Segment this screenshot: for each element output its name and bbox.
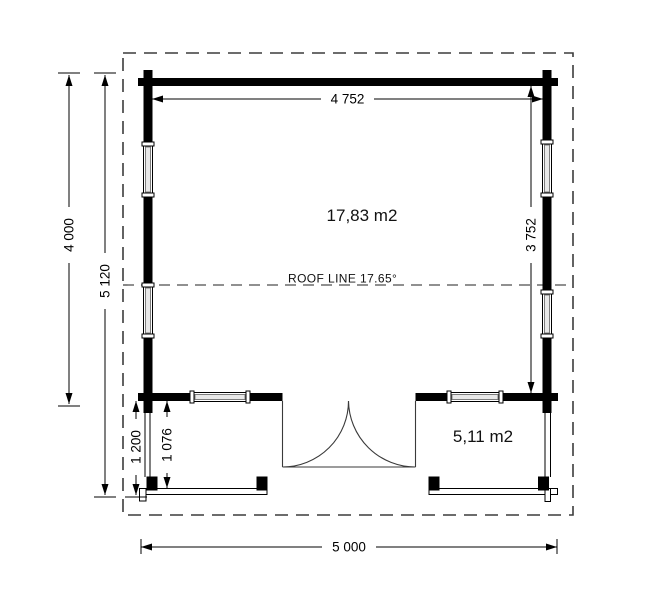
- dim-porch-depth-label: 1 200: [129, 430, 144, 464]
- wall-segment-right-2: [543, 197, 552, 290]
- porch-post: [147, 477, 158, 491]
- walls: [138, 70, 558, 413]
- arrowhead-up: [164, 401, 171, 412]
- arrowhead-down: [102, 484, 109, 495]
- window-front-left: [190, 391, 250, 403]
- terrace-edge: [140, 489, 268, 495]
- window-left-lower: [142, 283, 154, 338]
- terrace-corner: [140, 489, 147, 502]
- window-glass: [146, 288, 151, 333]
- window-glass: [146, 147, 151, 192]
- dim-room-depth: 3 752: [524, 86, 539, 393]
- window-cap: [541, 334, 553, 338]
- arrowhead-right: [546, 544, 557, 551]
- porch-post: [257, 477, 268, 491]
- dim-overall-width: 5 000: [141, 539, 557, 555]
- dim-top-width: 4 752: [152, 92, 543, 107]
- window-glass: [195, 395, 245, 400]
- porch-post: [429, 477, 440, 491]
- roof-line-label: ROOF LINE 17.65°: [288, 272, 397, 286]
- door-swing-arc-left: [283, 401, 349, 467]
- window-cap: [541, 193, 553, 197]
- window-cap: [246, 391, 250, 403]
- arrowhead-down: [66, 393, 73, 404]
- window-left-upper: [142, 142, 154, 197]
- window-cap: [142, 283, 154, 287]
- wall-segment-front-c: [416, 393, 448, 401]
- main-room-area-label: 17,83 m2: [327, 206, 398, 225]
- dim-top-width-label: 4 752: [331, 92, 365, 107]
- dim-house-depth: 4 000: [58, 73, 80, 406]
- window-cap: [541, 290, 553, 294]
- roof-ridge-line: ROOF LINE 17.65°: [123, 272, 573, 286]
- window-glass: [545, 295, 550, 333]
- window-cap: [142, 334, 154, 338]
- wall-segment-left-1: [144, 70, 153, 142]
- arrowhead-up: [528, 86, 535, 97]
- window-cap: [541, 140, 553, 144]
- arrowhead-down: [164, 477, 171, 488]
- wall-segment-front-b: [250, 393, 283, 401]
- arrowhead-down: [528, 382, 535, 393]
- porch-post: [538, 477, 549, 491]
- window-cap: [499, 391, 503, 403]
- double-door: [283, 401, 416, 467]
- window-front-right: [447, 391, 503, 403]
- floor-plan-canvas: ROOF LINE 17.65°: [0, 0, 647, 600]
- dim-house-depth-label: 4 000: [62, 218, 77, 252]
- window-glass: [452, 395, 498, 400]
- dim-porch-depth: 1 200: [125, 401, 147, 497]
- door-swing-arc-right: [349, 401, 416, 467]
- dim-overall-width-label: 5 000: [332, 540, 366, 555]
- window-cap: [142, 142, 154, 146]
- window-cap: [447, 391, 451, 403]
- window-glass: [545, 145, 550, 192]
- porch-area-label: 5,11 m2: [453, 427, 513, 446]
- wall-segment-left-2: [144, 197, 153, 283]
- arrowhead-left: [152, 96, 163, 103]
- wall-segment-front-a: [138, 393, 190, 401]
- dim-porch-inner-depth: 1 076: [160, 401, 175, 488]
- arrowhead-up: [102, 75, 109, 86]
- wall-segment-top: [138, 78, 558, 86]
- window-cap: [190, 391, 194, 403]
- wall-segment-right-1: [543, 70, 552, 140]
- dim-total-depth-label: 5 120: [98, 264, 113, 298]
- arrowhead-left: [141, 544, 152, 551]
- wall-segment-front-d: [503, 393, 558, 401]
- dim-room-depth-label: 3 752: [524, 218, 539, 252]
- arrowhead-up: [133, 401, 140, 412]
- dim-porch-inner-depth-label: 1 076: [160, 428, 175, 462]
- window-right-upper: [541, 140, 553, 197]
- dim-total-depth: 5 120: [94, 73, 116, 497]
- arrowhead-down: [133, 484, 140, 495]
- porch-right: [429, 401, 558, 502]
- floor-plan: ROOF LINE 17.65°: [0, 0, 647, 600]
- window-right-lower: [541, 290, 553, 338]
- arrowhead-up: [66, 75, 73, 86]
- window-cap: [142, 193, 154, 197]
